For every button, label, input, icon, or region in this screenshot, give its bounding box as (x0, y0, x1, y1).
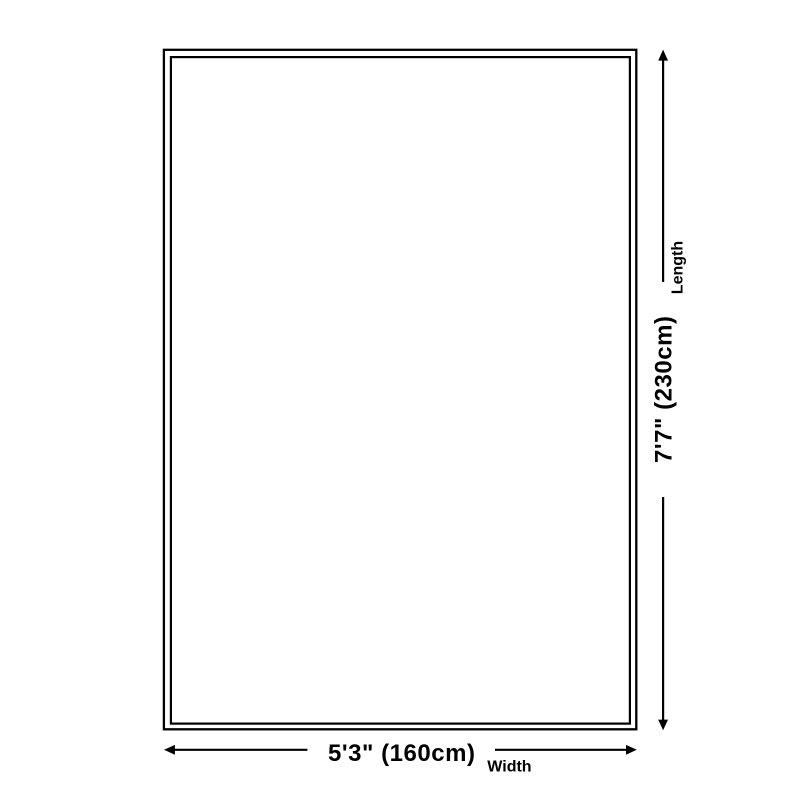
svg-text:Length: Length (670, 241, 687, 294)
svg-text:7'7" (230cm): 7'7" (230cm) (651, 316, 678, 463)
svg-text:Width: Width (487, 759, 531, 776)
svg-text:5'3" (160cm): 5'3" (160cm) (328, 740, 475, 767)
